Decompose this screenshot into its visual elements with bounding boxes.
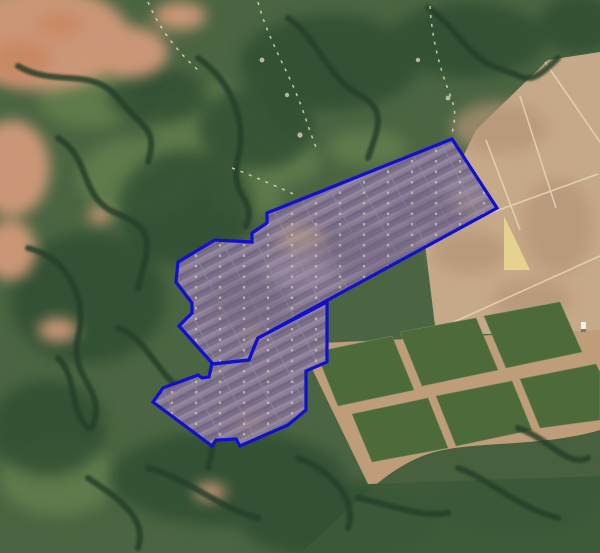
satellite-image xyxy=(0,0,600,553)
map-viewport[interactable] xyxy=(0,0,600,553)
small-structure xyxy=(581,322,586,332)
